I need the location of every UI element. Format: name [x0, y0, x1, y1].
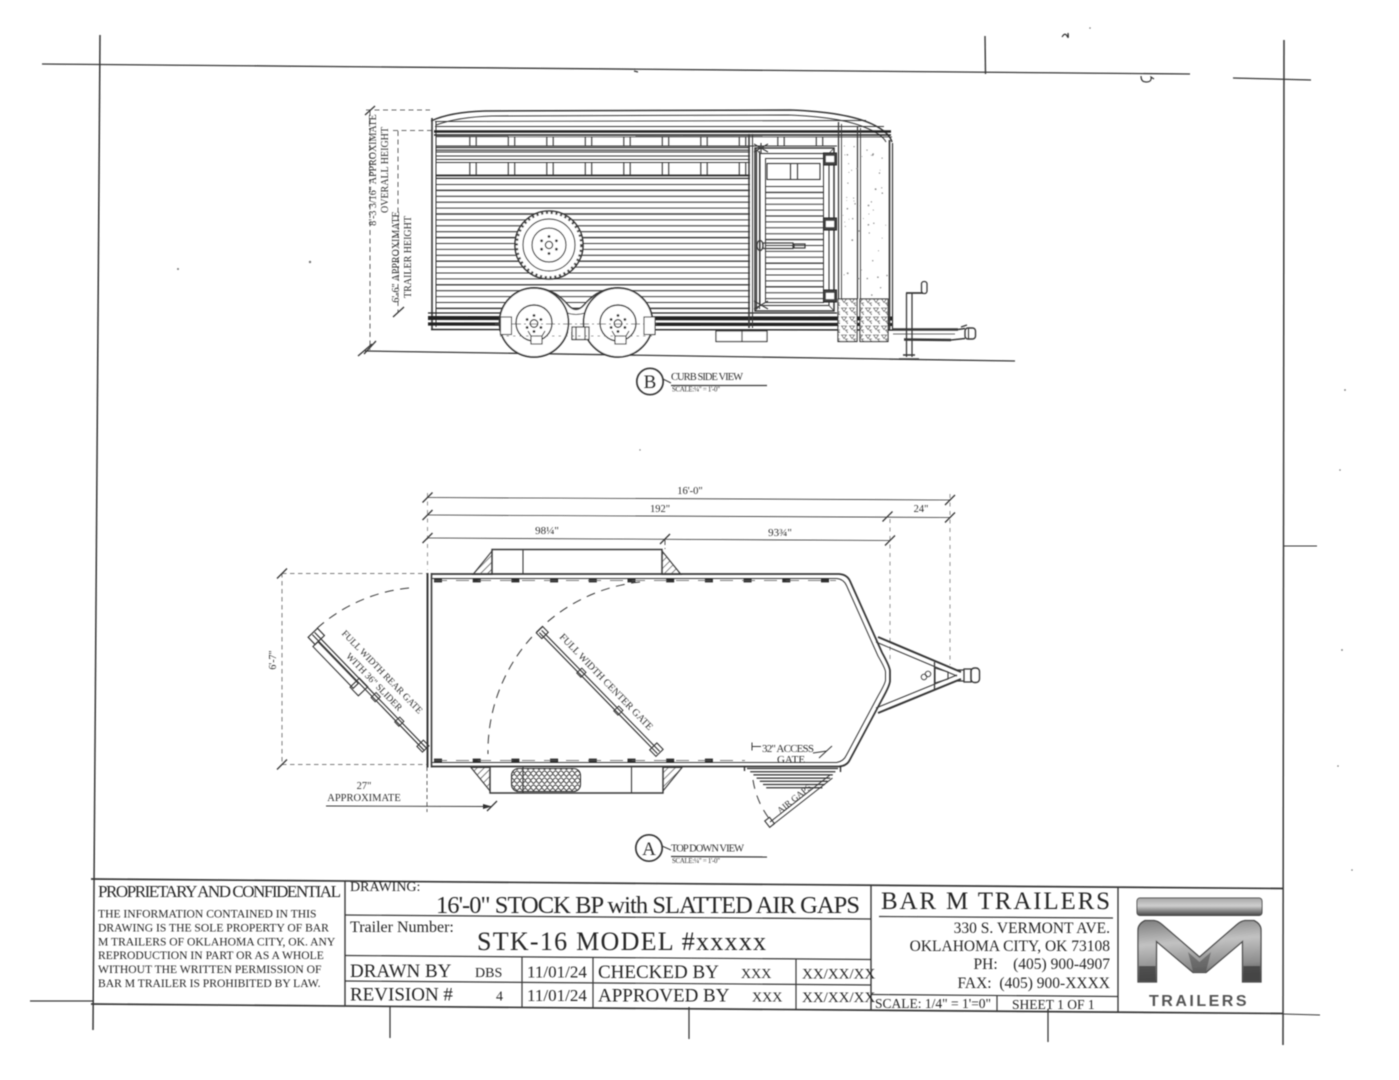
svg-text:93¾": 93¾"	[768, 527, 792, 539]
svg-text:THE INFORMATION CONTAINED IN T: THE INFORMATION CONTAINED IN THIS	[98, 908, 316, 921]
svg-text:PROPRIETARY AND CONFIDENTIAL: PROPRIETARY AND CONFIDENTIAL	[98, 882, 341, 901]
svg-text:SHEET 1 OF 1: SHEET 1 OF 1	[1012, 997, 1095, 1012]
svg-text:OVERALL HEIGHT: OVERALL HEIGHT	[380, 127, 391, 213]
svg-text:24": 24"	[914, 504, 929, 515]
svg-text:APPROVED BY: APPROVED BY	[598, 986, 730, 1007]
svg-text:11/01/24: 11/01/24	[527, 963, 587, 982]
svg-text:16'-0" STOCK BP with SLATTED A: 16'-0" STOCK BP with SLATTED AIR GAPS	[436, 892, 860, 919]
svg-text:98¼": 98¼"	[535, 525, 559, 537]
svg-text:CURB SIDE VIEW: CURB SIDE VIEW	[671, 372, 743, 383]
svg-text:DRAWING IS THE SOLE PROPERTY O: DRAWING IS THE SOLE PROPERTY OF BAR	[98, 921, 329, 934]
svg-text:M TRAILERS OF OKLAHOMA CITY, O: M TRAILERS OF OKLAHOMA CITY, OK. ANY	[98, 935, 336, 948]
svg-text:4: 4	[496, 990, 503, 1005]
svg-text:BAR M TRAILERS: BAR M TRAILERS	[881, 888, 1110, 915]
svg-text:APPROXIMATE: APPROXIMATE	[327, 793, 401, 804]
svg-text:DBS: DBS	[475, 966, 502, 981]
svg-text:XX/XX/XX: XX/XX/XX	[802, 967, 875, 983]
svg-text:DRAWING:: DRAWING:	[350, 880, 420, 895]
svg-text:XXX: XXX	[752, 991, 782, 1006]
svg-text:TRAILERS: TRAILERS	[1149, 993, 1249, 1010]
svg-text:330 S. VERMONT AVE.: 330 S. VERMONT AVE.	[954, 920, 1110, 937]
svg-text:TOP DOWN VIEW: TOP DOWN VIEW	[671, 844, 744, 855]
svg-text:8'-3 3/16" APPROXIMATE: 8'-3 3/16" APPROXIMATE	[368, 114, 379, 225]
svg-text:DRAWN BY: DRAWN BY	[350, 961, 452, 982]
svg-text:SCALE:¼" = 1'-0": SCALE:¼" = 1'-0"	[672, 858, 720, 865]
svg-text:TRAILER HEIGHT: TRAILER HEIGHT	[403, 216, 414, 298]
svg-text:27": 27"	[357, 781, 372, 792]
svg-text:CHECKED BY: CHECKED BY	[598, 962, 719, 983]
svg-text:FAX: (405) 900-XXXX: FAX: (405) 900-XXXX	[957, 975, 1110, 992]
svg-text:SCALE: 1/4" = 1'=0": SCALE: 1/4" = 1'=0"	[875, 996, 991, 1011]
svg-text:192": 192"	[650, 504, 670, 515]
svg-text:XXX: XXX	[741, 967, 771, 982]
svg-text:6'-6" APPROXIMATE: 6'-6" APPROXIMATE	[391, 211, 402, 302]
svg-text:16'-0": 16'-0"	[677, 486, 702, 497]
svg-text:REPRODUCTION IN PART OR AS A W: REPRODUCTION IN PART OR AS A WHOLE	[98, 949, 324, 962]
svg-text:B: B	[644, 372, 657, 393]
svg-text:OKLAHOMA CITY, OK 73108: OKLAHOMA CITY, OK 73108	[910, 938, 1111, 955]
svg-text:PH: (405) 900-4907: PH: (405) 900-4907	[974, 956, 1111, 973]
svg-text:Trailer Number:: Trailer Number:	[350, 919, 454, 936]
svg-text:REVISION #: REVISION #	[350, 985, 453, 1006]
svg-text:WITHOUT THE WRITTEN PERMISSION: WITHOUT THE WRITTEN PERMISSION OF	[98, 963, 322, 976]
svg-text:SCALE:¼" = 1'-0": SCALE:¼" = 1'-0"	[672, 387, 720, 394]
svg-text:GATE: GATE	[777, 754, 805, 766]
svg-text:6'-7": 6'-7"	[268, 650, 279, 669]
svg-text:STK-16 MODEL #xxxxx: STK-16 MODEL #xxxxx	[477, 927, 766, 956]
svg-text:BAR M TRAILER IS PROHIBITED BY: BAR M TRAILER IS PROHIBITED BY LAW.	[98, 977, 321, 990]
svg-text:A: A	[642, 839, 656, 860]
svg-text:XX/XX/XX: XX/XX/XX	[802, 990, 875, 1006]
svg-text:11/01/24: 11/01/24	[527, 986, 587, 1005]
